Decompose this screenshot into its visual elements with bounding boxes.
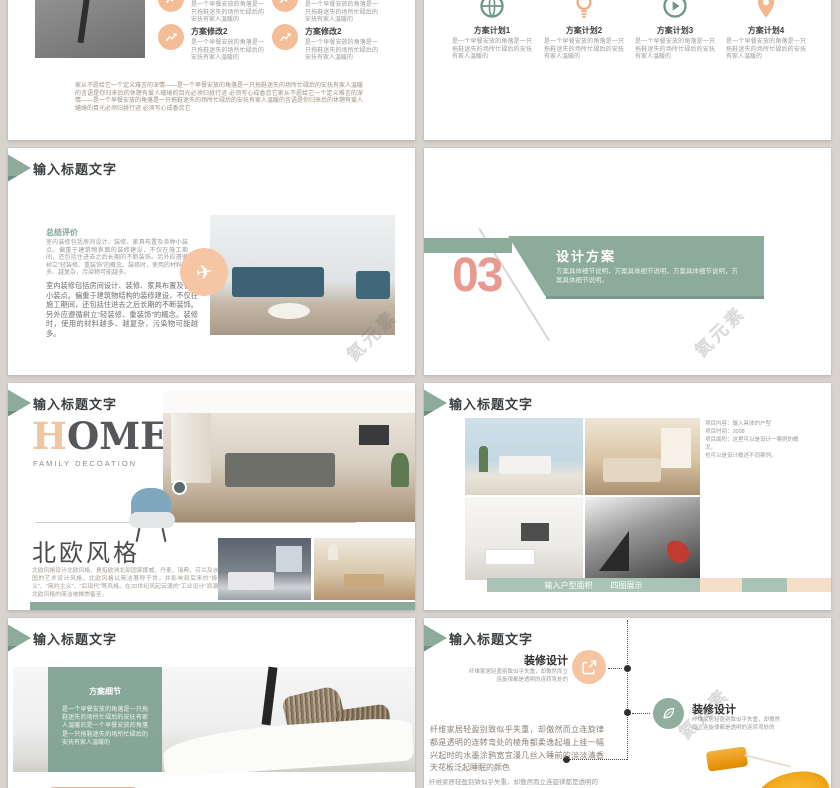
plan-body: 是一个早餐安放的角落是一只拖鞋迷失的场所忙碌后的安抚有家人温暖的	[452, 39, 532, 62]
photo-bedroom-small	[218, 538, 311, 600]
plan-label: 方案计划1	[447, 25, 537, 36]
timeline-item-body: 纤维家居轻盈别致似乎失重，却傲然而立连旋律都是透明的连转弯处的	[464, 669, 568, 684]
timeline-item-body: 纤维家居轻盈别致似乎失重，却傲然而立连旋律都是透明的连转弯处的	[692, 717, 780, 732]
plan-body: 是一个早餐安放的角落是一只拖鞋迷失的场所忙碌后的安抚有家人温暖的	[726, 39, 806, 62]
plan-column: 方案计划2 是一个早餐安放的角落是一只拖鞋迷失的场所忙碌后的安抚有家人温暖的	[539, 0, 629, 25]
photo-window-shape	[661, 428, 691, 468]
section-title: 设计方案	[556, 246, 616, 265]
slide-title: 输入标题文字	[449, 629, 533, 648]
photo-bedroom-warm	[585, 418, 700, 495]
plan-label: 方案计划4	[721, 25, 811, 36]
bottom-accent-bar	[30, 602, 415, 610]
timeline-item-title: 装修设计	[692, 701, 736, 717]
bulb-icon	[570, 0, 598, 20]
photo-table-shape	[344, 574, 384, 588]
photo-tv-shape	[359, 425, 389, 445]
photo-dining-small	[314, 538, 415, 600]
arrow-marker-shadow	[8, 411, 18, 423]
plan-label: 方案计划2	[539, 25, 629, 36]
bar-label-display: 四图展示	[611, 580, 643, 591]
photo-cactus-shape	[479, 446, 488, 472]
arrow-marker-shadow	[424, 411, 434, 423]
photo-table-shape	[268, 303, 310, 319]
photo-living-room	[163, 391, 415, 522]
feature-body: 是一个早餐安放的角落是一只拖鞋迷失的场所忙碌后的安抚有家人温暖的	[191, 40, 264, 63]
summary-paragraph-2: 室内装修包括房间设计、装修、家具布置及各种小装点。偏重于建筑物结构的装修建设，不…	[46, 281, 198, 339]
armchair-leg	[136, 528, 141, 542]
plan-column: 方案计划1 是一个早餐安放的角落是一只拖鞋迷失的场所忙碌后的安抚有家人温暖的	[447, 0, 537, 25]
plan-label: 方案计划3	[630, 25, 720, 36]
photo-armchair	[35, 0, 145, 58]
photo-chair-leg	[78, 0, 91, 43]
project-info: 项目内容：输入具体的户型 项目时间：2008 项目面积：这里可以是设计一案例的概…	[705, 420, 801, 460]
photo-chair-shape	[356, 271, 390, 299]
photo-counter-shape	[485, 549, 535, 565]
section-number: 03	[452, 248, 501, 303]
slide-thumb-deco-timeline[interactable]: 输入标题文字 装修设计 纤维家居轻盈别致似乎失重，却傲然而立连旋律都是透明的连转…	[424, 618, 831, 788]
photo-blue-armchair	[127, 486, 179, 544]
chart-icon	[272, 24, 298, 50]
slide-footnote-paragraph: 家从不愿给它一个定义难言的深情——是一个早餐安放的角落是一只拖鞋迷失的场所忙碌后…	[75, 83, 363, 113]
arrow-marker-shadow	[424, 646, 434, 658]
photo-ceiling	[163, 391, 415, 413]
plan-body: 是一个早餐安放的角落是一只拖鞋迷失的场所忙碌后的安抚有家人温暖的	[635, 39, 715, 62]
feature-body: 是一个早餐安放的角落是一只拖鞋迷失的场所忙碌后的安抚有家人温暖的	[305, 40, 378, 63]
plan-body: 是一个早餐安放的角落是一只拖鞋迷失的场所忙碌后的安抚有家人温暖的	[544, 39, 624, 62]
slide-title: 输入标题文字	[33, 394, 117, 413]
home-logo: HOME	[32, 417, 168, 455]
summary-paragraph-1: 室内装修包括房间设计、装修、家具布置及各种小装点。偏重于建筑物表面的装修建设，不…	[46, 240, 188, 278]
feature-body: 是一个早餐安放的角落是一只拖鞋迷失的场所忙碌后的安抚有家人温暖的	[305, 2, 378, 25]
photo-stairs-shape	[599, 531, 629, 571]
photo-sofa-shape	[232, 267, 324, 297]
photo-pole-shape	[261, 667, 277, 726]
bottom-bar-labels: 输入户型面积 四图展示	[487, 578, 700, 592]
timeline-connector	[608, 668, 622, 669]
deco-paragraph-1: 纤维家居轻盈别致似乎失重，却傲然而立连旋律都是透明的连转弯处的棱角都柔逸起墙上挂…	[430, 724, 604, 775]
lamp-head-shape	[706, 746, 748, 771]
photo-loft-bw	[585, 497, 700, 580]
feature-body: 是一个早餐安放的角落是一只拖鞋迷失的场所忙碌后的安抚有家人温暖的	[191, 2, 264, 25]
style-paragraph: 北欧风格设计北欧风格，是指欧洲北部国家挪威、丹麦、瑞典、芬兰及冰岛等国的艺术设计…	[32, 567, 230, 599]
photo-sofa-bridge	[210, 215, 395, 335]
feature-label: 方案修改2	[305, 26, 341, 37]
lamp-arm-shape	[744, 754, 791, 768]
photo-room-white	[465, 497, 583, 580]
project-info-line: 项目面积：这里可以是设计一案例的概况，	[705, 436, 801, 452]
leaf-icon	[653, 698, 684, 729]
slide-thumb-plan-steps[interactable]: 方案计划1 是一个早餐安放的角落是一只拖鞋迷失的场所忙碌后的安抚有家人温暖的 方…	[424, 0, 831, 140]
armchair-seat	[129, 512, 175, 528]
photo-chaise-shape	[162, 716, 414, 777]
export-icon	[572, 650, 606, 684]
photo-room-cactus	[465, 418, 583, 495]
arrow-marker-shadow	[8, 646, 18, 658]
section-desc: 方案具体细节说明，方案具体细节说明，方案具体细节说明，方案具体细节说明。	[556, 267, 744, 285]
photo-window	[171, 413, 211, 483]
home-logo-rest: OME	[67, 414, 168, 458]
bar-segment-peach	[700, 578, 742, 592]
timeline-item-title: 装修设计	[464, 652, 568, 668]
slide-title: 输入标题文字	[33, 629, 117, 648]
photo-lamp-shape	[328, 544, 338, 560]
pin-icon	[752, 0, 780, 20]
home-logo-subtitle: FAMILY DECOATION	[33, 459, 137, 468]
project-info-line: 也可以是设计概述不同案例。	[705, 452, 801, 460]
plan-column: 方案计划3 是一个早餐安放的角落是一只拖鞋迷失的场所忙碌后的安抚有家人温暖的	[630, 0, 720, 25]
armchair-leg	[162, 528, 167, 542]
feature-label: 方案修改2	[191, 26, 227, 37]
photo-bed-shape	[228, 572, 274, 590]
home-logo-h: H	[32, 414, 67, 458]
slide-title: 输入标题文字	[449, 394, 533, 413]
photo-plant-shape	[391, 453, 409, 487]
slide-thumb-plan-detail[interactable]: 输入标题文字 方案细节 是一个早餐安放的角落是一只拖鞋迷失的场所忙碌后的安抚有家…	[8, 618, 415, 788]
timeline-connector	[632, 713, 650, 714]
bar-segment-green	[742, 578, 787, 592]
play-icon	[661, 0, 689, 20]
detail-panel-body: 是一个早餐安放的角落是一只拖鞋迷失的场所忙碌后的安抚有家人温暖的是一个早餐安放的…	[62, 706, 148, 747]
photo-red-flower-shape	[667, 541, 689, 563]
timeline-node	[624, 665, 631, 672]
badge-dot-icon	[172, 480, 187, 495]
photo-sofa-shape	[225, 453, 335, 487]
chart-icon	[272, 0, 298, 12]
bar-label-area: 输入户型面积	[545, 580, 593, 591]
deco-paragraph-2: 纤维家居轻盈别致似乎失重，却傲然而立连旋律都是透明的	[429, 778, 611, 787]
banner-shadow-edge	[546, 296, 764, 299]
arrow-marker-icon	[8, 624, 31, 652]
photo-bed-shape	[603, 458, 661, 482]
photo-sideboard-shape	[499, 456, 551, 474]
airplane-icon: ✈	[180, 248, 228, 296]
slide-thumb-plan-revise[interactable]: 是一个早餐安放的角落是一只拖鞋迷失的场所忙碌后的安抚有家人温暖的 是一个早餐安放…	[8, 0, 415, 140]
template-preview-grid: 是一个早餐安放的角落是一只拖鞋迷失的场所忙碌后的安抚有家人温暖的 是一个早餐安放…	[0, 0, 840, 788]
arrow-marker-icon	[8, 389, 31, 417]
arrow-marker-shadow	[8, 176, 18, 188]
detail-panel: 方案细节 是一个早餐安放的角落是一只拖鞋迷失的场所忙碌后的安抚有家人温暖的是一个…	[48, 667, 162, 772]
detail-panel-title: 方案细节	[48, 686, 162, 697]
timeline-node	[624, 709, 631, 716]
divider-line	[36, 522, 356, 523]
photo-window-shape	[276, 546, 302, 572]
bar-segment-peach	[787, 578, 831, 592]
chart-icon	[158, 24, 184, 50]
airplane-glyph: ✈	[194, 258, 214, 285]
section-banner: 设计方案 方案具体细节说明，方案具体细节说明，方案具体细节说明，方案具体细节说明…	[508, 236, 764, 296]
globe-icon	[478, 0, 506, 20]
chart-icon	[158, 0, 184, 12]
photo-tv-shape	[521, 523, 549, 541]
arrow-marker-icon	[424, 624, 447, 652]
slide-thumb-section-03[interactable]: 03 设计方案 方案具体细节说明，方案具体细节说明，方案具体细节说明，方案具体细…	[424, 148, 831, 375]
section-heading: 总结评价	[46, 227, 78, 238]
plan-column: 方案计划4 是一个早餐安放的角落是一只拖鞋迷失的场所忙碌后的安抚有家人温暖的	[721, 0, 811, 25]
slide-thumb-nordic-style[interactable]: 输入标题文字 HOME FAMILY DECOATION 北欧风格 北欧风格设计…	[8, 383, 415, 610]
arrow-marker-icon	[424, 389, 447, 417]
style-heading: 北欧风格	[32, 533, 140, 568]
timeline-line	[627, 620, 628, 760]
slide-thumb-four-photos[interactable]: 输入标题文字 项目内容：输入具体的户型 项目时间：2008 项目面积：这里可以是…	[424, 383, 831, 610]
slide-title: 输入标题文字	[33, 159, 117, 178]
arrow-marker-icon	[8, 154, 31, 182]
project-info-line: 项目内容：输入具体的户型	[705, 420, 801, 428]
slide-thumb-summary[interactable]: 输入标题文字 总结评价 室内装修包括房间设计、装修、家具布置及各种小装点。偏重于…	[8, 148, 415, 375]
project-info-line: 项目时间：2008	[705, 428, 801, 436]
